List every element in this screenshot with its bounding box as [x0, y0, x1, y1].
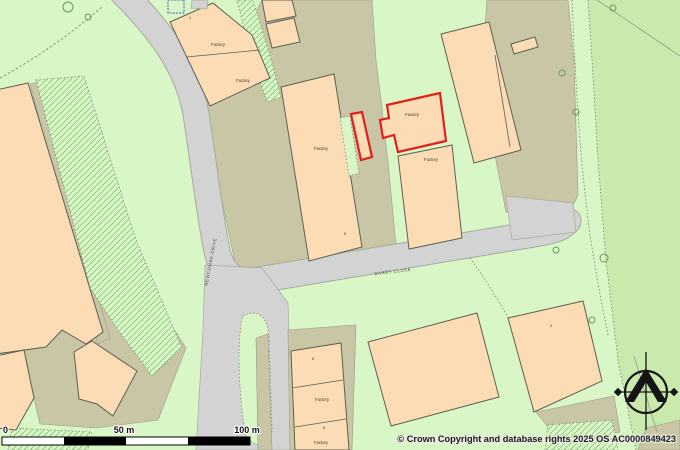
building-use-label: Factory — [314, 146, 329, 151]
scale-tick-0: 0 — [3, 425, 8, 435]
copyright-attribution: © Crown Copyright and database rights 20… — [397, 434, 676, 444]
building-use-label: Factory — [315, 397, 330, 402]
scale-tick-50: 50 m — [114, 425, 135, 435]
scale-bar-segment — [188, 437, 250, 445]
map-viewport[interactable]: FactoryFactoryFactoryFactoryFactoryFacto… — [0, 0, 680, 450]
building-use-label: Factory — [405, 112, 420, 117]
map-canvas[interactable]: FactoryFactoryFactoryFactoryFactoryFacto… — [0, 0, 680, 450]
scale-tick-100: 100 m — [234, 425, 260, 435]
road-turning-area — [506, 196, 576, 240]
building-use-label: Factory — [236, 78, 251, 83]
building-use-label: Factory — [424, 157, 439, 162]
building-use-label: Factory — [211, 42, 226, 47]
scale-bar-segment — [64, 437, 126, 445]
building-gray-top — [191, 0, 208, 9]
building-small-top-2 — [266, 18, 300, 48]
building-use-label: Factory — [314, 440, 329, 445]
